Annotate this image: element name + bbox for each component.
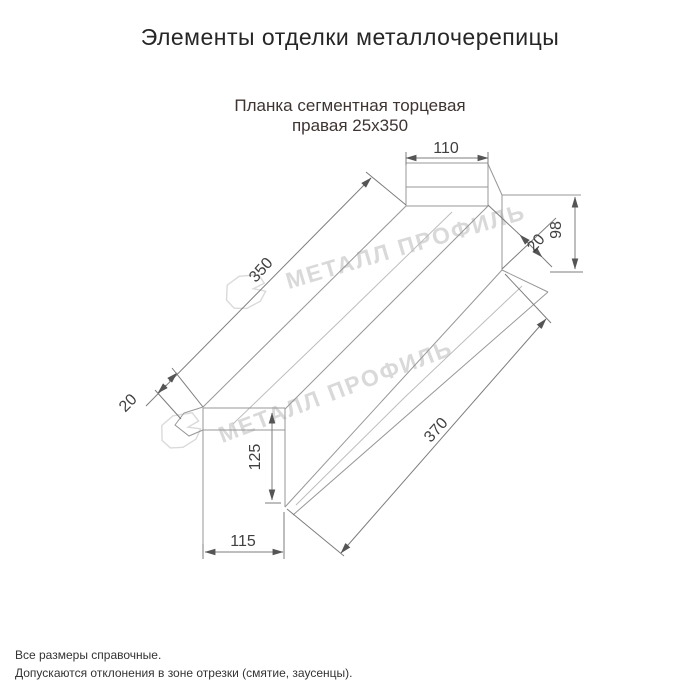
dim-115-label: 115 bbox=[230, 533, 256, 550]
watermark-lower: МЕТАЛЛ ПРОФИЛЬ bbox=[155, 334, 456, 453]
dim-20-left-label: 20 bbox=[116, 391, 141, 416]
top-end-tab bbox=[406, 163, 488, 206]
dim-125-label: 125 bbox=[247, 444, 264, 471]
extension-line bbox=[505, 274, 551, 323]
drawing-page: { "page": { "title": "Элементы отделки м… bbox=[0, 0, 700, 700]
watermark-text-upper: МЕТАЛЛ ПРОФИЛЬ bbox=[283, 198, 529, 294]
footer-note-1: Все размеры справочные. bbox=[15, 646, 675, 664]
watermark-text-lower: МЕТАЛЛ ПРОФИЛЬ bbox=[215, 334, 457, 447]
right-end-bottom-edge bbox=[502, 270, 548, 292]
dimension-370: 370 bbox=[287, 274, 551, 556]
arrow-segment bbox=[363, 178, 371, 186]
footer-notes: Все размеры справочные. Допускаются откл… bbox=[15, 646, 675, 682]
technical-drawing: МЕТАЛЛ ПРОФИЛЬ МЕТАЛЛ ПРОФИЛЬ bbox=[0, 0, 700, 700]
extension-line bbox=[155, 390, 181, 419]
compass-star-icon bbox=[155, 408, 205, 454]
dim-20-right-label: 20 bbox=[524, 231, 549, 256]
extension-line bbox=[366, 172, 406, 205]
dim-110-label: 110 bbox=[433, 140, 459, 157]
dimension-98: 98 bbox=[548, 197, 583, 272]
arrow-segment bbox=[158, 385, 166, 393]
dim-350-label: 350 bbox=[246, 255, 277, 286]
dimension-line-tail bbox=[542, 257, 552, 267]
extension-line bbox=[287, 509, 344, 556]
dim-370-label: 370 bbox=[421, 415, 452, 446]
extension-line bbox=[172, 368, 203, 407]
top-end-connector bbox=[488, 164, 502, 195]
dimension-115: 115 bbox=[203, 512, 284, 559]
dimension-110: 110 bbox=[406, 140, 488, 165]
footer-note-2: Допускаются отклонения в зоне отрезки (с… bbox=[15, 664, 675, 682]
watermark-upper: МЕТАЛЛ ПРОФИЛЬ bbox=[221, 198, 529, 313]
dimension-line bbox=[146, 178, 371, 406]
arrow-segment bbox=[169, 373, 177, 381]
